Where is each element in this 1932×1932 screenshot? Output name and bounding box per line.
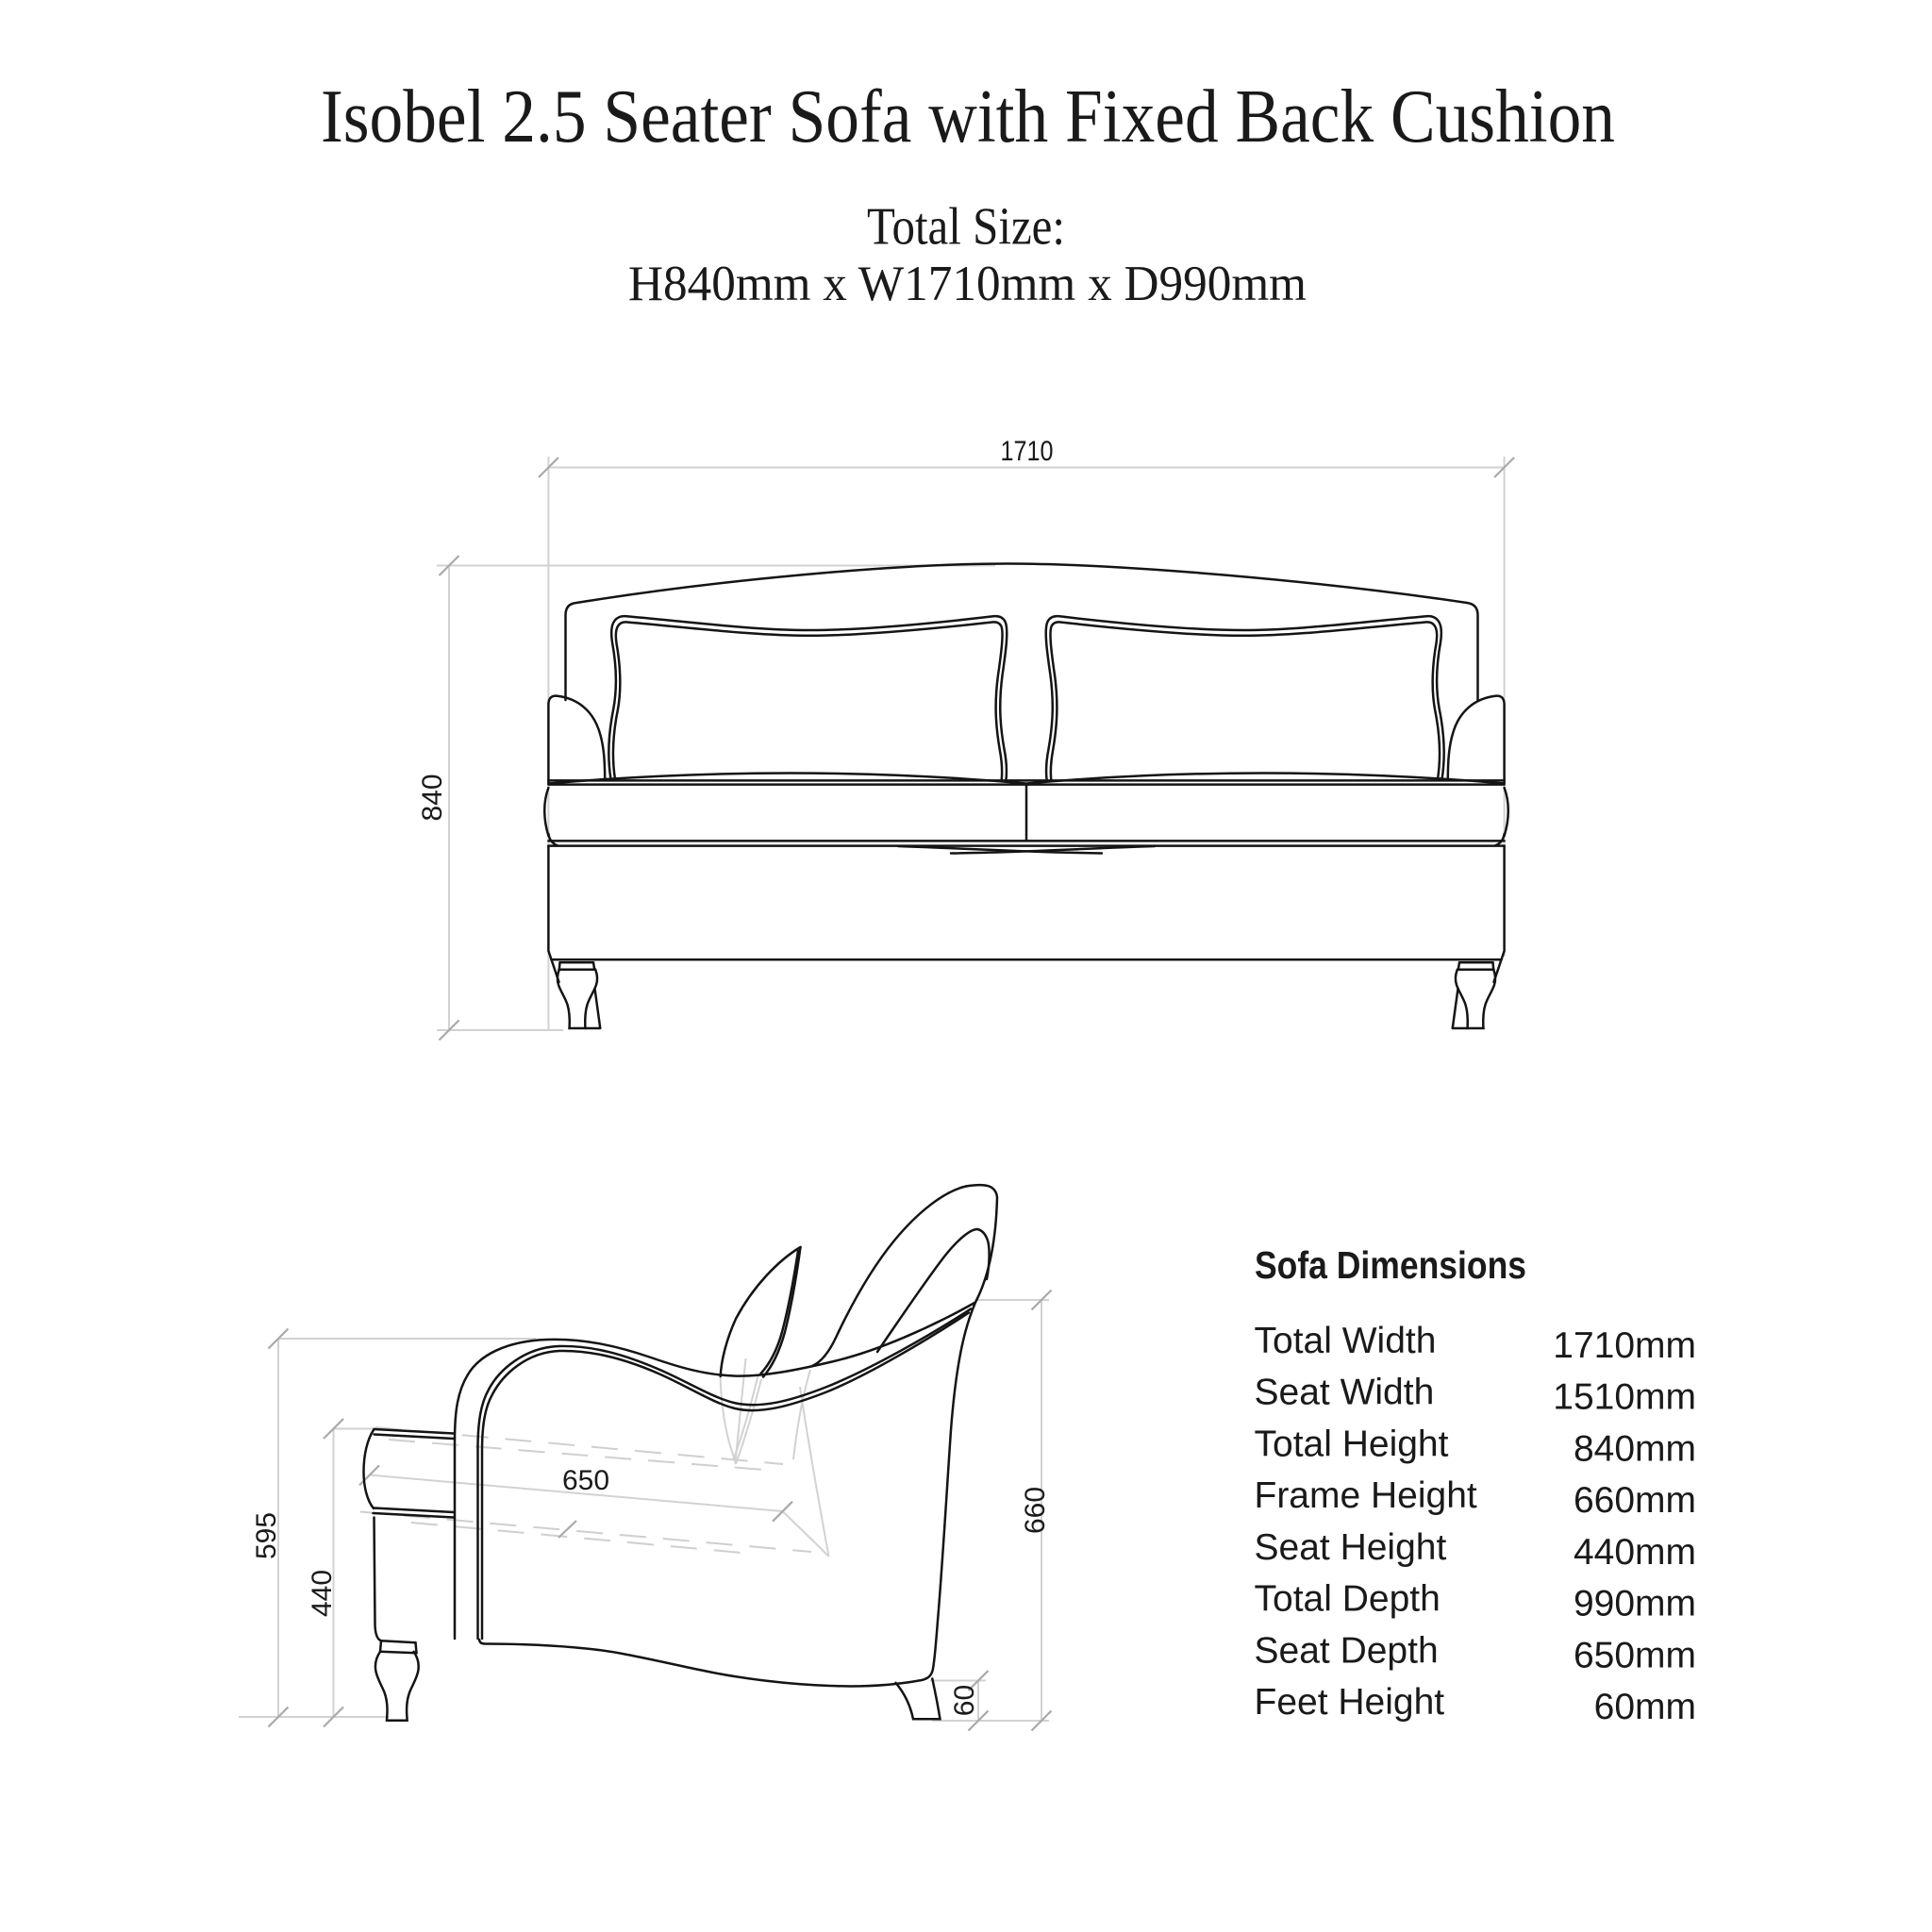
- svg-text:Total Depth: Total Depth: [1255, 1579, 1441, 1620]
- svg-text:440mm: 440mm: [1574, 1532, 1696, 1573]
- svg-text:660mm: 660mm: [1574, 1480, 1696, 1521]
- svg-text:Seat Depth: Seat Depth: [1255, 1630, 1439, 1671]
- svg-text:H840mm x W1710mm x D990mm: H840mm x W1710mm x D990mm: [628, 257, 1307, 311]
- svg-text:Isobel 2.5 Seater Sofa with Fi: Isobel 2.5 Seater Sofa with Fixed Back C…: [321, 75, 1615, 158]
- svg-text:Total Width: Total Width: [1255, 1321, 1437, 1361]
- svg-text:840: 840: [417, 774, 448, 821]
- svg-text:1510mm: 1510mm: [1553, 1377, 1696, 1418]
- svg-text:595: 595: [251, 1512, 282, 1559]
- svg-text:Frame Height: Frame Height: [1255, 1475, 1477, 1516]
- svg-text:650: 650: [562, 1465, 609, 1496]
- svg-text:990mm: 990mm: [1574, 1584, 1696, 1624]
- svg-text:Total Height: Total Height: [1255, 1424, 1449, 1464]
- svg-text:840mm: 840mm: [1574, 1428, 1696, 1469]
- svg-text:Feet Height: Feet Height: [1255, 1682, 1445, 1723]
- svg-text:440: 440: [307, 1570, 338, 1617]
- svg-text:660: 660: [1020, 1487, 1051, 1534]
- svg-text:Total Size:: Total Size:: [867, 198, 1065, 257]
- svg-text:Seat Height: Seat Height: [1255, 1527, 1447, 1568]
- svg-text:1710mm: 1710mm: [1553, 1325, 1696, 1366]
- svg-text:650mm: 650mm: [1574, 1635, 1696, 1675]
- svg-text:60: 60: [949, 1685, 980, 1716]
- svg-text:Sofa Dimensions: Sofa Dimensions: [1255, 1243, 1526, 1287]
- svg-text:Seat Width: Seat Width: [1255, 1373, 1435, 1413]
- svg-text:60mm: 60mm: [1594, 1687, 1696, 1727]
- svg-text:1710: 1710: [1001, 436, 1054, 467]
